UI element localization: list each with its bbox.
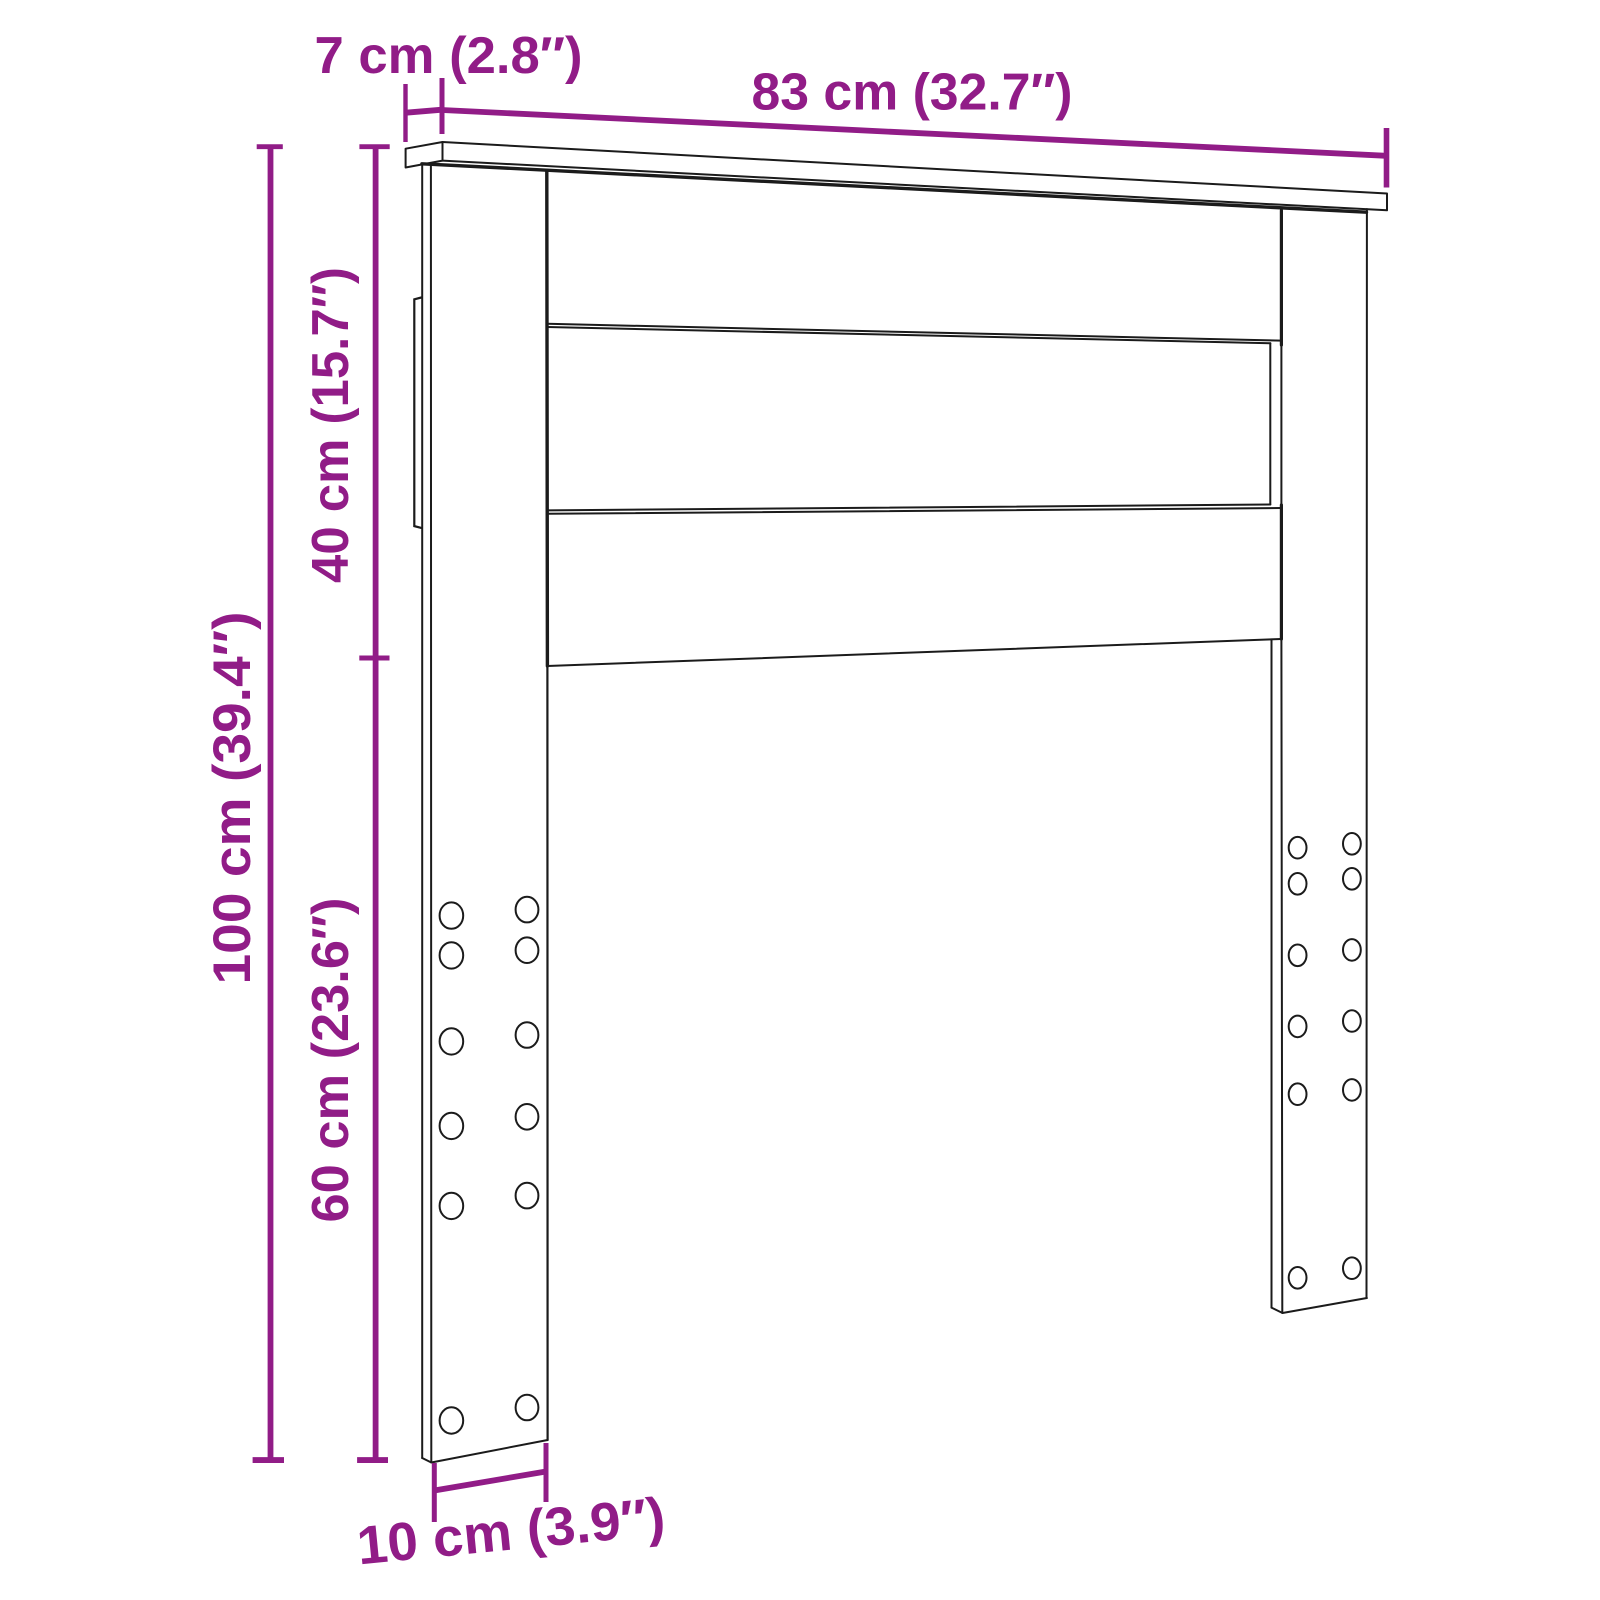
svg-text:40 cm (15.7″): 40 cm (15.7″) (302, 267, 360, 583)
svg-text:100 cm (39.4″): 100 cm (39.4″) (203, 612, 262, 985)
svg-text:60 cm (23.6″): 60 cm (23.6″) (302, 898, 360, 1223)
svg-text:7 cm (2.8″): 7 cm (2.8″) (315, 27, 583, 85)
svg-text:83 cm (32.7″): 83 cm (32.7″) (752, 64, 1073, 122)
